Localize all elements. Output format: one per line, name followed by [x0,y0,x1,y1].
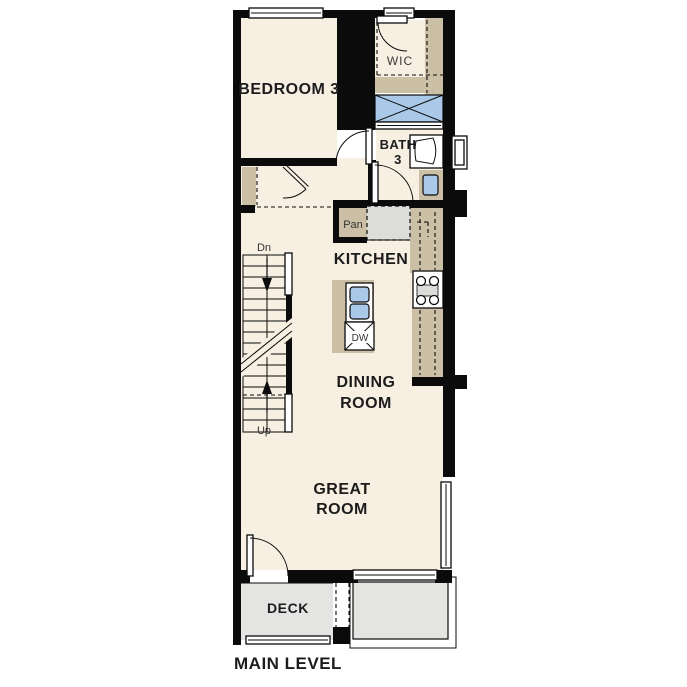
deck-label: DECK [267,600,309,616]
great-label-1: GREAT [313,481,370,498]
wic-shelf-bottom [375,77,445,93]
range-center [417,285,438,296]
right-deck-floor [353,582,448,639]
burner-icon [417,296,426,305]
burner-icon [430,277,439,286]
sink-bowl-icon [350,287,369,302]
left-wall [233,10,241,645]
bedroom3-label: BEDROOM 3 [238,81,339,98]
deck-post [333,627,350,644]
bath-window-inner [455,140,464,165]
hall-closet [242,167,256,207]
stair-rail-top [285,253,292,295]
burner-icon [417,277,426,286]
floorplan-svg: BEDROOM 3 WIC BATH 3 Pan KITCHEN DW Dn U… [0,0,687,687]
pantry-label: Pan [343,219,363,231]
burner-icon [430,296,439,305]
stair-rail-bottom [285,394,292,432]
dining-label-2: ROOM [340,395,392,412]
deck-rail [246,636,330,644]
bath3-label-1: BATH [380,137,417,152]
bedroom-bottom-wall [233,158,337,166]
kitchen-counter-upper [410,208,443,273]
toilet-icon [423,175,438,195]
deck-door-leaf [247,535,253,576]
right-wall [443,10,455,477]
deck-divider-dashes [336,583,349,627]
closet-bottom-wall [233,205,255,213]
refrigerator-icon [367,206,410,240]
dishwasher-label: DW [352,333,369,344]
wic-door-leaf [377,16,407,23]
dining-label-1: DINING [337,374,396,391]
kitchen-label: KITCHEN [334,251,409,268]
great-label-2: ROOM [316,501,368,518]
plan-title: MAIN LEVEL [234,654,342,673]
wic-floor [375,20,425,77]
counter-end-wall [412,377,455,386]
right-wall-notch-lower [455,375,467,389]
right-wall-notch-upper [455,190,467,217]
greatroom-bottom-wall-mid [288,570,358,583]
bedroom-door-leaf [366,128,372,164]
bath-door-leaf [372,162,378,203]
chase-column [337,17,375,130]
kitchen-counter-lower [412,306,443,377]
bath3-label-2: 3 [394,152,402,167]
stairs-down-label: Dn [257,242,271,254]
sink-bowl-icon [350,304,369,319]
stairs-up-label: Up [257,425,271,437]
floorplan-page: BEDROOM 3 WIC BATH 3 Pan KITCHEN DW Dn U… [0,0,687,687]
wic-label: WIC [387,54,413,68]
